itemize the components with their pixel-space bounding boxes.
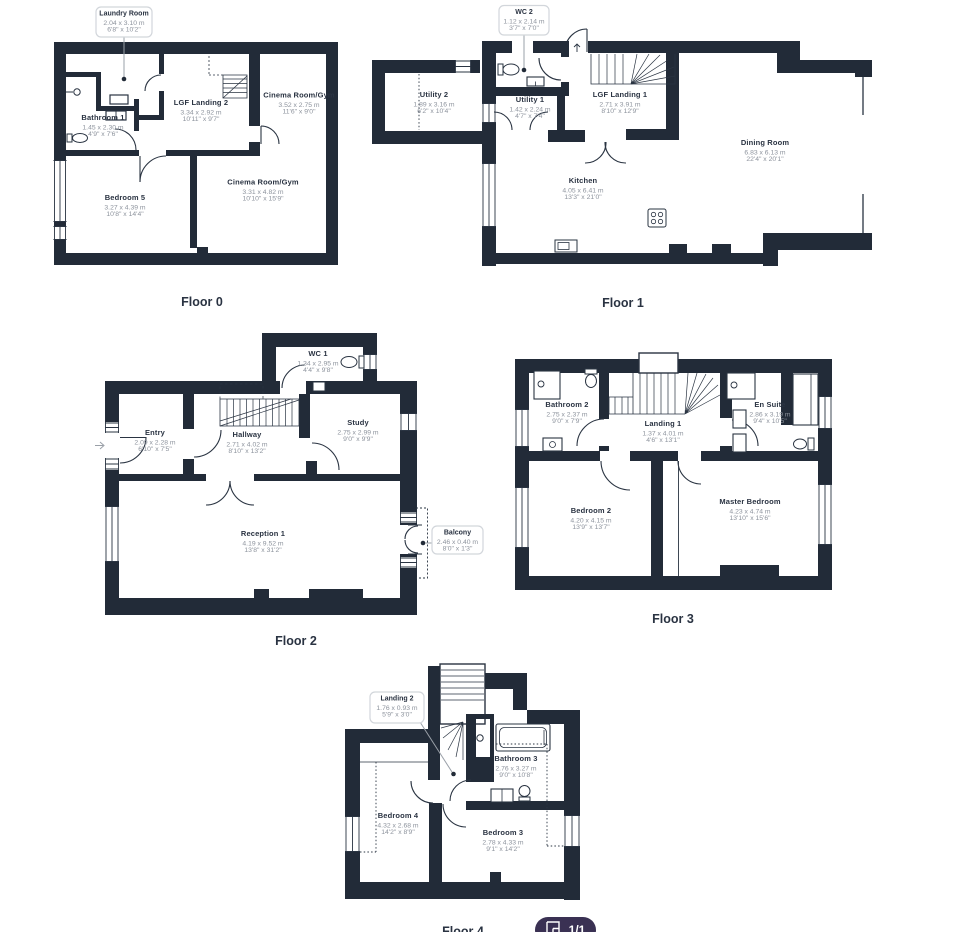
svg-text:22'4" x 20'1": 22'4" x 20'1" <box>746 156 784 163</box>
svg-text:Utility 2: Utility 2 <box>420 90 448 99</box>
svg-text:Dining Room: Dining Room <box>741 138 789 147</box>
svg-text:6'2" x 10'4": 6'2" x 10'4" <box>417 108 451 115</box>
svg-text:Landing 2: Landing 2 <box>380 696 413 703</box>
svg-text:1/1: 1/1 <box>569 923 586 932</box>
svg-text:Hallway: Hallway <box>233 430 263 439</box>
svg-text:Floor 1: Floor 1 <box>602 296 644 310</box>
svg-text:4'4" x 9'8": 4'4" x 9'8" <box>303 367 333 374</box>
svg-text:Bedroom 5: Bedroom 5 <box>105 193 146 202</box>
svg-text:10'8" x 14'4": 10'8" x 14'4" <box>106 211 144 218</box>
svg-text:4'7" x 7'4": 4'7" x 7'4" <box>515 113 545 120</box>
svg-text:Balcony: Balcony <box>444 530 471 537</box>
svg-text:9'0" x 7'9": 9'0" x 7'9" <box>552 418 582 425</box>
svg-text:13'9" x 13'7": 13'9" x 13'7" <box>572 524 610 531</box>
svg-text:8'10" x 12'9": 8'10" x 12'9" <box>601 108 639 115</box>
svg-text:LGF Landing 1: LGF Landing 1 <box>593 90 647 99</box>
svg-text:Reception 1: Reception 1 <box>241 529 285 538</box>
svg-text:8'10" x 13'2": 8'10" x 13'2" <box>228 448 266 455</box>
svg-text:Bathroom 1: Bathroom 1 <box>81 113 124 122</box>
svg-text:Cinema Room/Gym: Cinema Room/Gym <box>263 91 335 100</box>
svg-text:Utility 1: Utility 1 <box>516 95 544 104</box>
svg-text:Bedroom 2: Bedroom 2 <box>571 506 612 515</box>
svg-text:14'2" x 8'9": 14'2" x 8'9" <box>381 829 415 836</box>
svg-text:Bathroom 3: Bathroom 3 <box>494 754 537 763</box>
svg-text:9'0" x 9'9": 9'0" x 9'9" <box>343 436 373 443</box>
svg-text:Floor 2: Floor 2 <box>275 634 317 648</box>
svg-text:4'6" x 13'1": 4'6" x 13'1" <box>646 437 680 444</box>
svg-text:8'0" x 1'3": 8'0" x 1'3" <box>443 546 473 553</box>
svg-text:Kitchen: Kitchen <box>569 176 598 185</box>
svg-text:9'1" x 14'2": 9'1" x 14'2" <box>486 846 520 853</box>
svg-text:Bedroom 3: Bedroom 3 <box>483 828 524 837</box>
svg-text:Laundry Room: Laundry Room <box>99 11 148 18</box>
svg-text:Bathroom 2: Bathroom 2 <box>545 400 588 409</box>
svg-text:Landing 1: Landing 1 <box>645 419 682 428</box>
svg-text:9'0" x 10'8": 9'0" x 10'8" <box>499 772 533 779</box>
svg-text:Bedroom 4: Bedroom 4 <box>378 811 419 820</box>
svg-text:Master Bedroom: Master Bedroom <box>719 497 780 506</box>
svg-text:LGF Landing 2: LGF Landing 2 <box>174 98 228 107</box>
svg-text:Floor 4: Floor 4 <box>442 925 484 932</box>
svg-text:6'8" x 10'2": 6'8" x 10'2" <box>107 27 141 34</box>
svg-text:9'4" x 10'5": 9'4" x 10'5" <box>753 418 787 425</box>
svg-text:10'11" x 9'7": 10'11" x 9'7" <box>183 116 220 123</box>
svg-text:13'8" x 31'2": 13'8" x 31'2" <box>244 547 282 554</box>
svg-text:4'9" x 7'6": 4'9" x 7'6" <box>88 131 118 138</box>
svg-text:Floor 0: Floor 0 <box>181 295 223 309</box>
svg-text:WC 1: WC 1 <box>308 349 327 358</box>
svg-text:11'6" x 9'0": 11'6" x 9'0" <box>283 109 317 116</box>
svg-text:Floor 3: Floor 3 <box>652 612 694 626</box>
svg-text:6'10" x 7'5": 6'10" x 7'5" <box>138 446 172 453</box>
svg-text:13'10" x 15'6": 13'10" x 15'6" <box>729 515 771 522</box>
svg-text:Cinema Room/Gym: Cinema Room/Gym <box>227 178 299 187</box>
svg-text:3'7" x 7'0": 3'7" x 7'0" <box>509 25 539 32</box>
svg-text:10'10" x 15'9": 10'10" x 15'9" <box>242 196 284 203</box>
svg-text:5'9" x 3'0": 5'9" x 3'0" <box>382 712 412 719</box>
svg-text:13'3" x 21'0": 13'3" x 21'0" <box>564 194 602 201</box>
svg-text:WC 2: WC 2 <box>515 9 533 16</box>
svg-text:Entry: Entry <box>145 428 166 437</box>
svg-text:En Suite: En Suite <box>754 400 785 409</box>
svg-text:Study: Study <box>347 418 369 427</box>
